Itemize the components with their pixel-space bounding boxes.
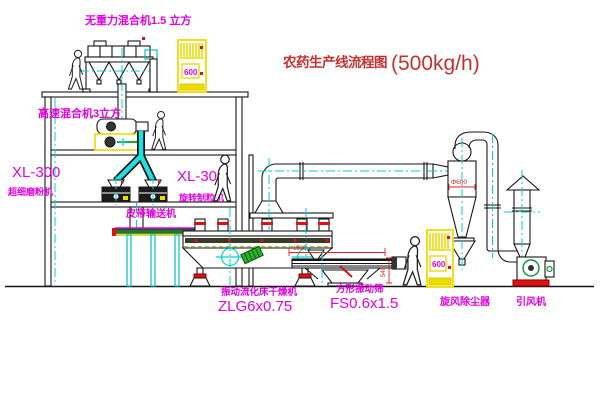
dryer-ports — [194, 219, 330, 231]
dryer-foot-left — [190, 268, 210, 286]
high-speed-mixer-label: 高速混合机3立方 — [38, 106, 121, 120]
exhaust-duct — [255, 158, 460, 231]
cyclone-diameter-dim: Φ600 — [451, 179, 467, 186]
mill-label-group: XL-300 超细磨粉机 — [7, 164, 60, 197]
title-text: 农药生产线流程图 — [282, 54, 387, 70]
mill-name-label: 超细磨粉机 — [7, 186, 53, 197]
cabinet-top-text: 600 — [184, 68, 198, 77]
gravity-mixer-label: 无重力混合机1.5 立方 — [84, 13, 191, 27]
drawing-title: 农药生产线流程图 (500kg/h) — [282, 52, 480, 75]
sieve-model-label: FS0.6x1.5 — [330, 295, 398, 312]
dryer-model-label: ZLG6x0.75 — [218, 298, 292, 315]
sieve-name-label: 方形振动筛 — [336, 283, 384, 295]
sieve-height-dim: 540 — [381, 266, 387, 277]
process-flow-drawing: 农药生产线流程图 (500kg/h) 无重力混合机1.5 立方 — [0, 0, 600, 403]
title-capacity: (500kg/h) — [391, 52, 480, 75]
mill-model-label: XL-300 — [12, 164, 60, 181]
control-cabinet-top: 600 — [178, 40, 206, 92]
dryer-foot-right — [295, 268, 315, 286]
worker-top-floor — [69, 50, 83, 89]
flow-diagram-canvas: 农药生产线流程图 (500kg/h) 无重力混合机1.5 立方 — [0, 0, 600, 403]
fan-label: 引风机 — [516, 295, 546, 308]
sieve-length-dim: 1500 — [293, 246, 307, 252]
cyclone-label: 旋风除尘器 — [439, 295, 491, 308]
cabinet-ground-text: 600 — [432, 260, 446, 269]
control-cabinet-ground: 600 — [427, 230, 453, 287]
dryer-name-label: 振动流化床干燥机 — [221, 286, 298, 298]
worker-second-floor — [152, 112, 166, 150]
belt-conveyor-label: 皮带输送机 — [125, 207, 176, 220]
